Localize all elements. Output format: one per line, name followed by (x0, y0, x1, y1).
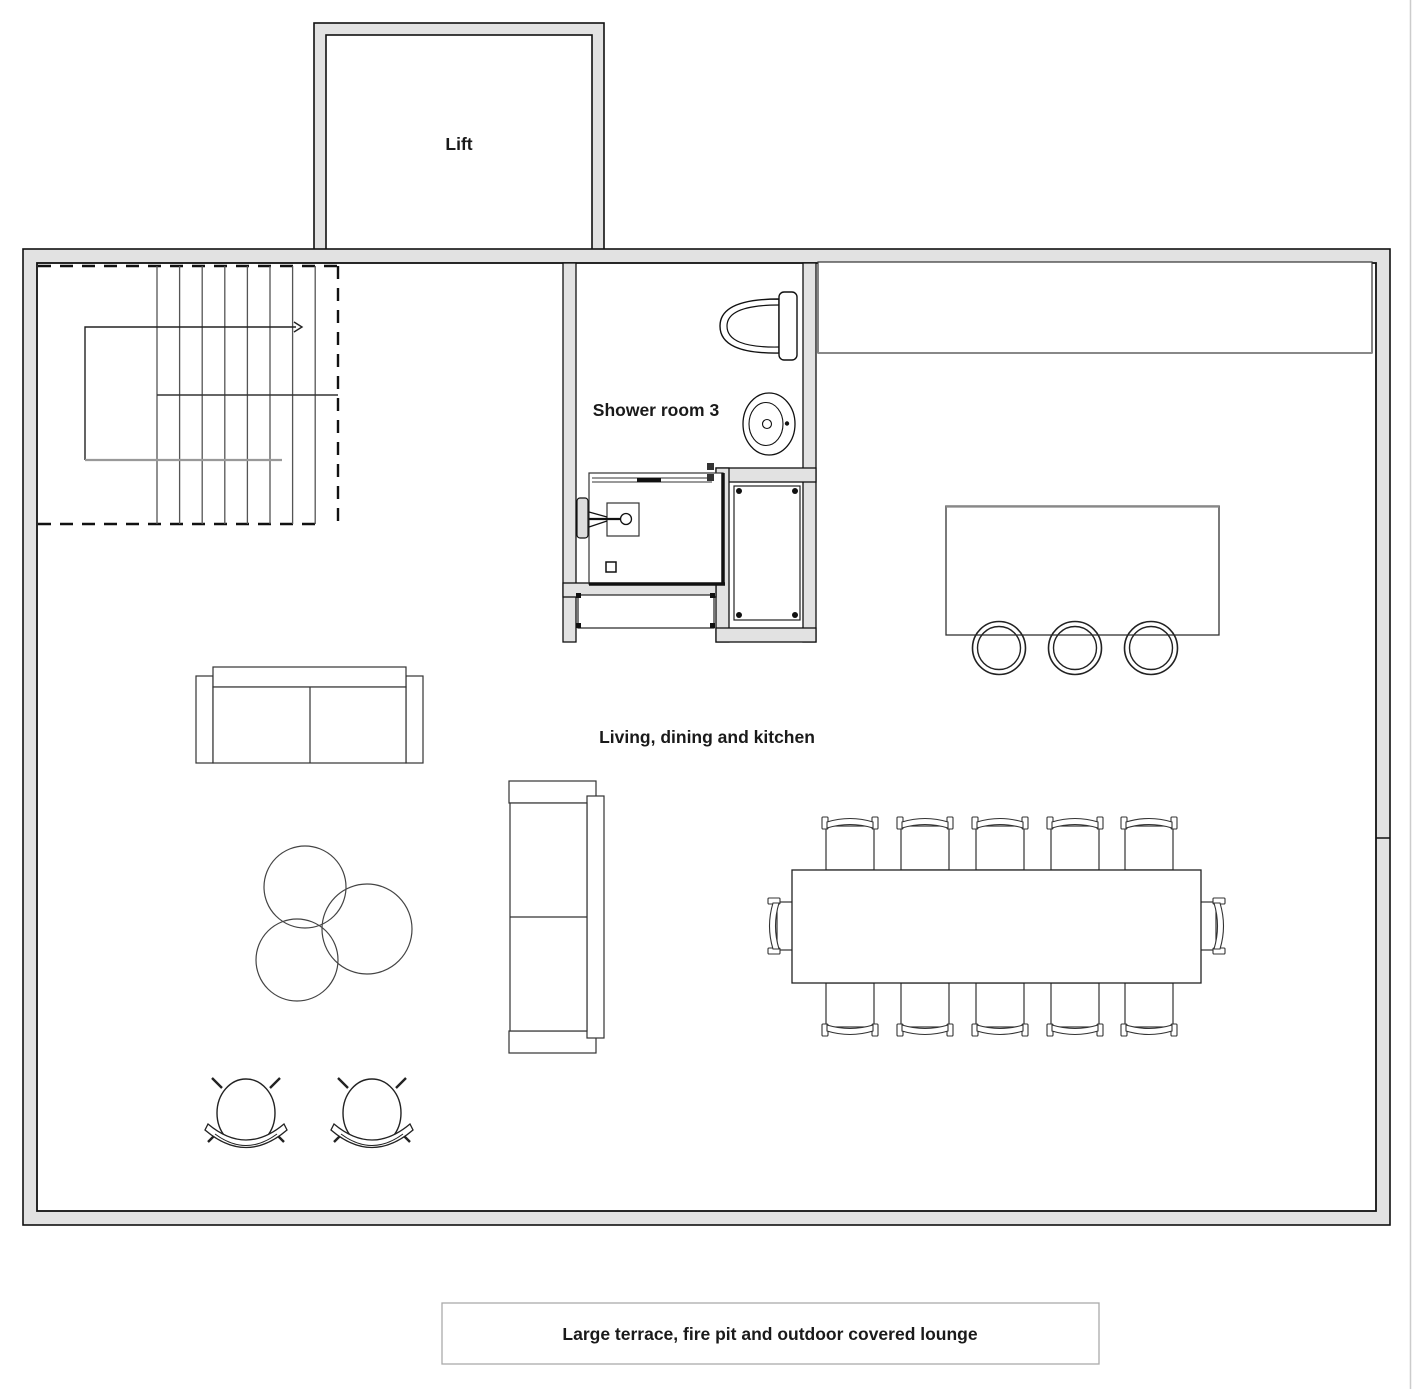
dining-chair (1047, 983, 1103, 1036)
shower-head-icon (577, 498, 639, 538)
shower-drain (606, 562, 616, 572)
dining-chair (1121, 817, 1177, 870)
caption-label: Large terrace, fire pit and outdoor cove… (562, 1324, 977, 1344)
floor-plan-page: Lift Shower room 3 Living, dining and ki… (0, 0, 1413, 1389)
dining-table (792, 870, 1201, 983)
kitchen-island (946, 506, 1219, 635)
shower-room-label: Shower room 3 (593, 400, 720, 420)
side-compartment (734, 486, 800, 620)
sofa-horizontal (196, 667, 423, 763)
caption-box: Large terrace, fire pit and outdoor cove… (442, 1303, 1099, 1364)
dining-set (768, 817, 1225, 1036)
kitchen-counter (818, 262, 1372, 353)
sofa-vertical (509, 781, 604, 1053)
floor-plan: Lift Shower room 3 Living, dining and ki… (0, 0, 1413, 1389)
dining-chair (897, 983, 953, 1036)
dining-chair (897, 817, 953, 870)
dining-chair (1047, 817, 1103, 870)
dining-chair (972, 983, 1028, 1036)
dining-chair (822, 817, 878, 870)
shower-enclosure (577, 463, 725, 584)
dining-chair (1121, 983, 1177, 1036)
dining-chair (822, 983, 878, 1036)
sink-icon (743, 393, 795, 455)
shower-alcove (576, 593, 715, 628)
lift-label: Lift (445, 134, 472, 154)
living-area-label: Living, dining and kitchen (599, 727, 815, 747)
dining-chair (972, 817, 1028, 870)
